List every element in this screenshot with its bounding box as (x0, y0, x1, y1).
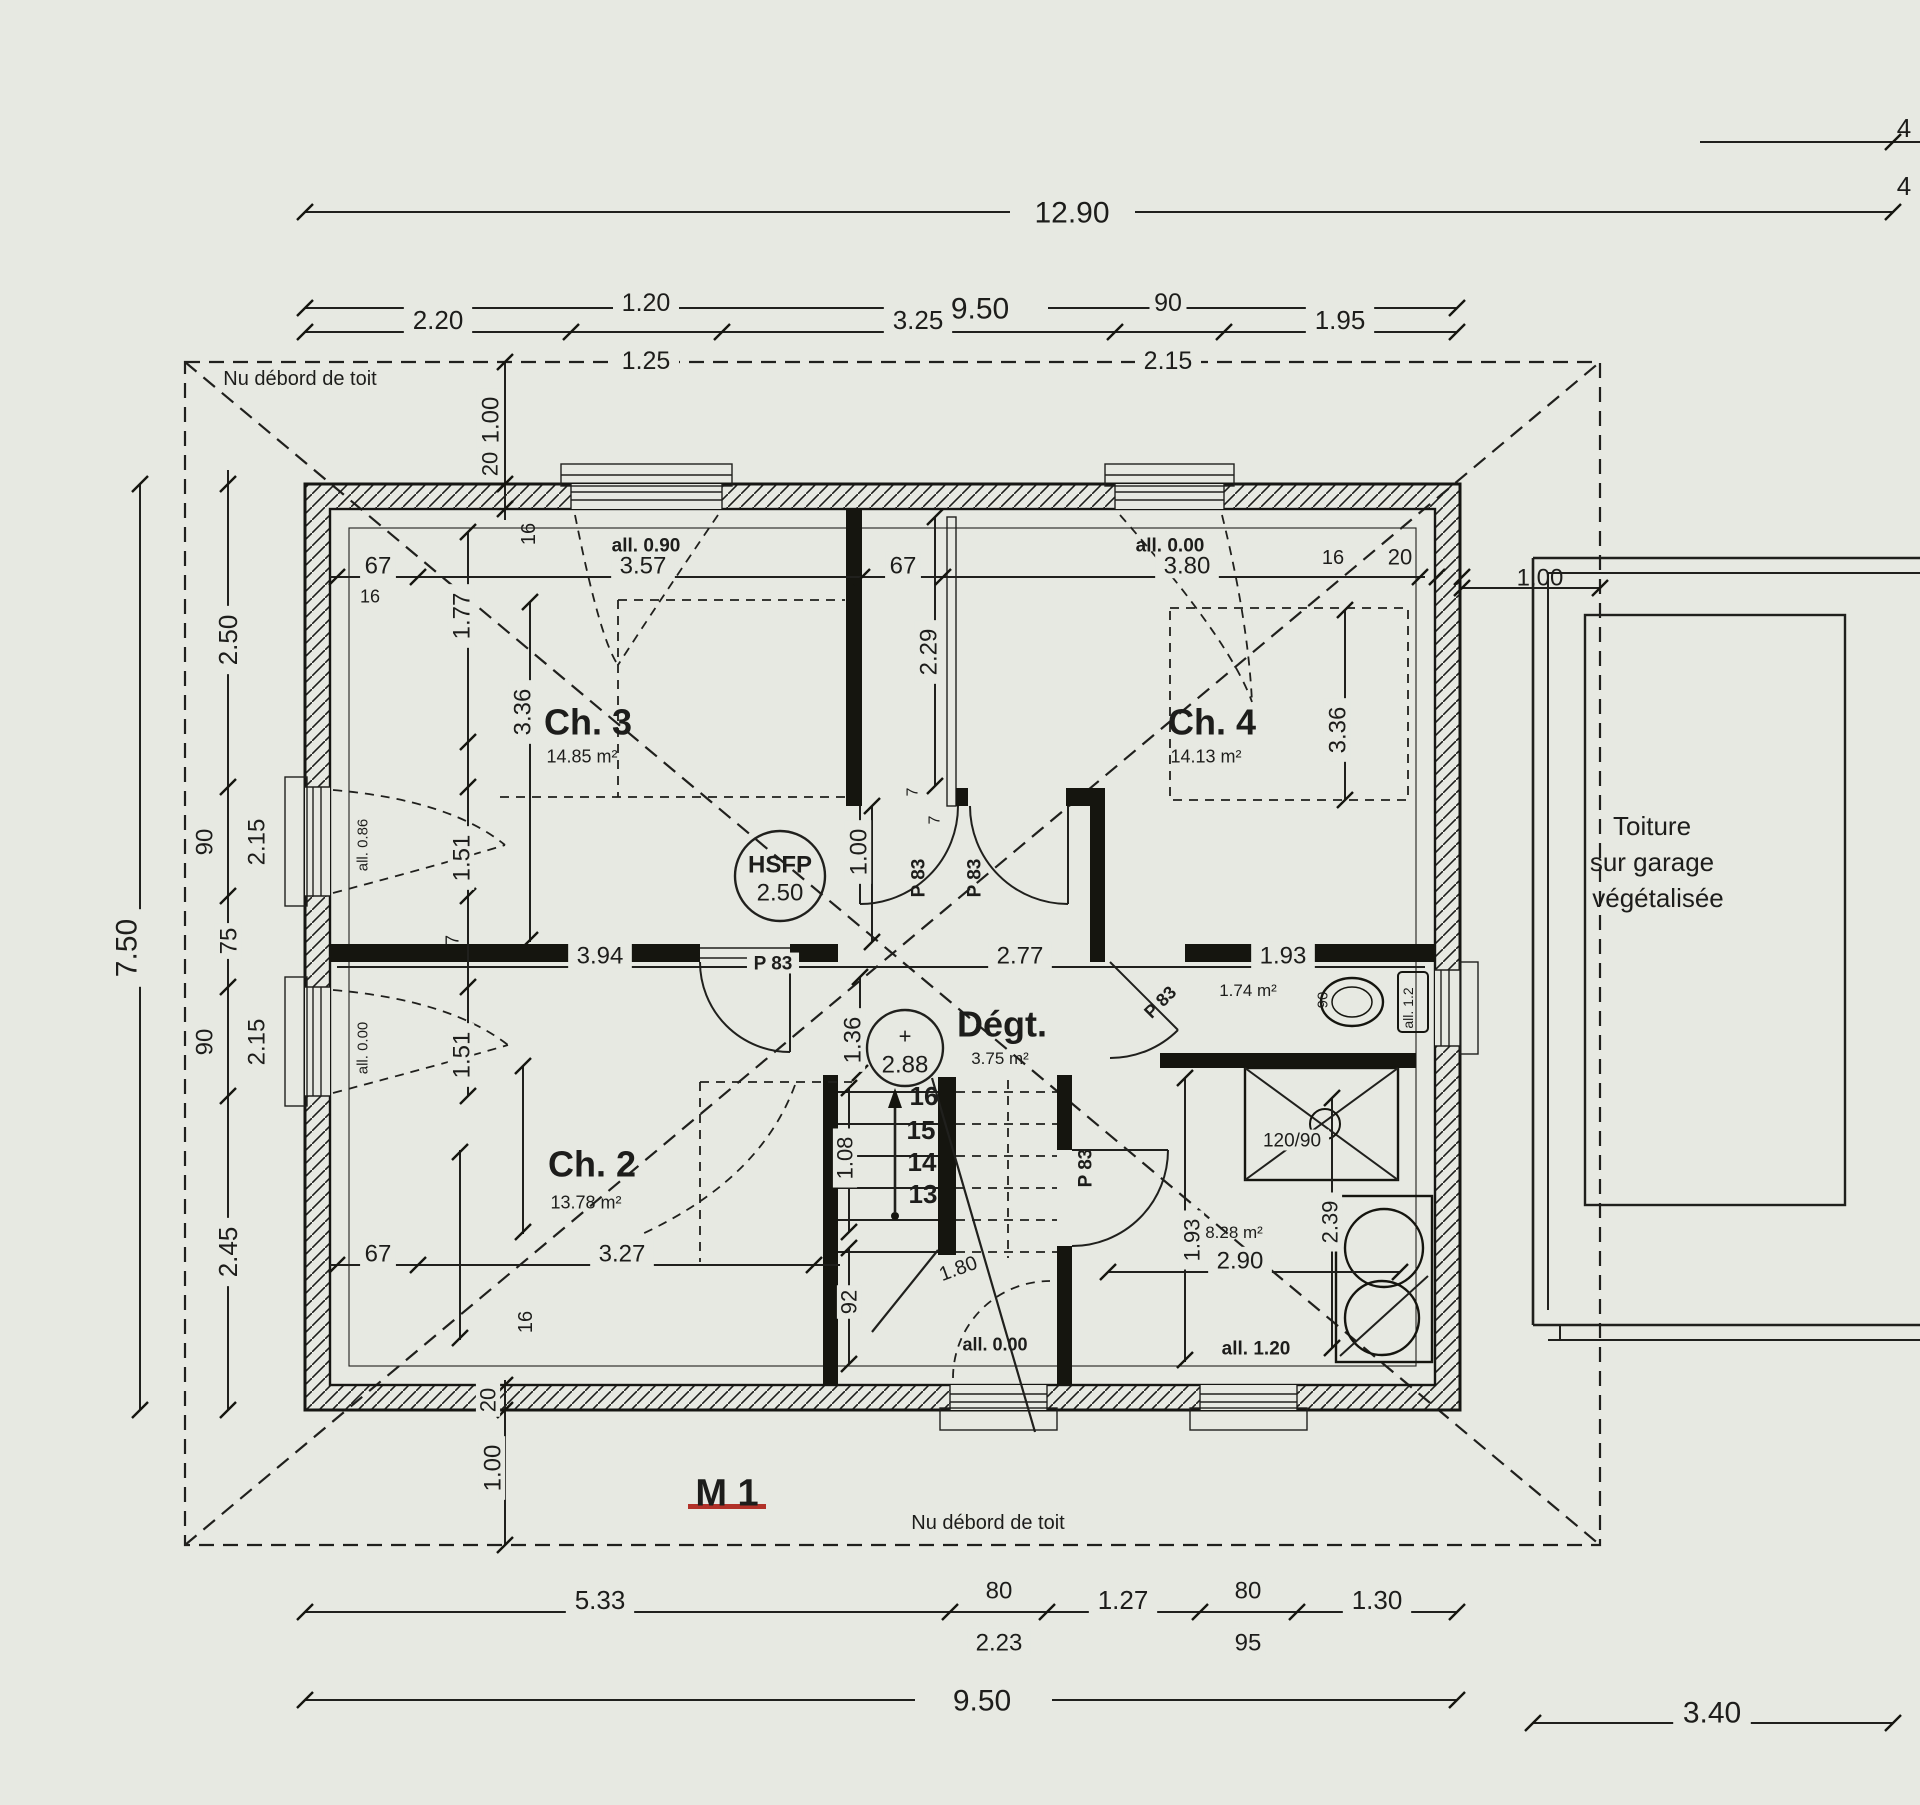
dim-interior: 3.94 (568, 942, 632, 970)
svg-text:all. 0.86: all. 0.86 (354, 819, 371, 872)
svg-text:80: 80 (1235, 1577, 1262, 1604)
svg-text:1.93: 1.93 (1180, 1219, 1205, 1262)
svg-text:80: 80 (986, 1577, 1013, 1604)
dim-interior: 1.93 (1180, 1210, 1205, 1269)
svg-text:4: 4 (1897, 171, 1911, 201)
svg-text:2.39: 2.39 (1318, 1201, 1343, 1244)
dim-top-house: 9.50 (941, 292, 1019, 326)
door-label: P 83 (1076, 1149, 1097, 1188)
level-hsfp-label: HSFP (748, 851, 812, 878)
svg-text:1.08: 1.08 (833, 1137, 858, 1180)
sill-label: all. 0.00 (962, 1334, 1027, 1354)
level-floor-value: 2.88 (882, 1051, 929, 1078)
dim-right-edge-fragment: 4 (1897, 113, 1911, 143)
dim-bottom-garage: 3.40 (1673, 1696, 1751, 1730)
svg-text:4: 4 (1897, 113, 1911, 143)
dim-wall: 16 (518, 523, 540, 545)
dim-interior: 2.77 (988, 942, 1052, 970)
fixture-shower-size: 120/90 (1255, 1130, 1329, 1152)
dim-right-edge-fragment: 4 (1897, 171, 1911, 201)
svg-text:67: 67 (365, 1240, 392, 1267)
dim-left: 2.45 (213, 1218, 243, 1286)
dim-top: 1.95 (1306, 305, 1374, 335)
svg-text:all. 0.00: all. 0.00 (962, 1334, 1027, 1354)
svg-text:12.90: 12.90 (1034, 197, 1109, 230)
room-ch3-label: Ch. 3 (544, 702, 632, 743)
stair-tread-16: 16 (910, 1081, 939, 1111)
svg-text:7: 7 (927, 815, 944, 824)
dim-interior: 67 (360, 1240, 396, 1268)
level-hsfp-value: 2.50 (757, 879, 804, 906)
svg-text:14: 14 (908, 1147, 937, 1177)
svg-text:8.28 m²: 8.28 m² (1205, 1223, 1263, 1242)
svg-text:2.50: 2.50 (757, 879, 804, 906)
svg-text:2.20: 2.20 (413, 305, 464, 335)
stair-tread-15: 15 (907, 1115, 936, 1145)
svg-text:2.15: 2.15 (1144, 347, 1193, 375)
dim-interior: 3.36 (1324, 698, 1352, 762)
svg-text:20: 20 (476, 1388, 501, 1412)
room-ch2-label: Ch. 2 (548, 1144, 636, 1185)
svg-text:1.30: 1.30 (1352, 1585, 1403, 1615)
svg-text:1.93: 1.93 (1260, 942, 1307, 969)
room-degt-area: 3.75 m² (971, 1049, 1029, 1068)
svg-text:3.40: 3.40 (1683, 1697, 1741, 1730)
dim-interior: 2.39 (1318, 1192, 1343, 1251)
svg-text:1.25: 1.25 (622, 347, 671, 375)
dim-interior: 3.80 (1155, 552, 1219, 580)
svg-text:1.00: 1.00 (479, 1445, 506, 1492)
svg-text:Nu débord de toit: Nu débord de toit (911, 1512, 1065, 1534)
svg-text:75: 75 (215, 928, 242, 955)
level-floor-plus: + (899, 1024, 912, 1049)
svg-text:3.80: 3.80 (1164, 552, 1211, 579)
dim-left: 2.50 (213, 606, 243, 674)
svg-text:Ch. 4: Ch. 4 (1168, 702, 1256, 743)
dim-bottom-house: 9.50 (943, 1684, 1021, 1718)
room-wc-area: 1.74 m² (1219, 981, 1277, 1000)
dim-wall: 16 (1322, 547, 1344, 569)
svg-text:2.88: 2.88 (882, 1051, 929, 1078)
dim-interior: 92 (837, 1285, 862, 1319)
dim-interior: 7 (927, 815, 944, 824)
dim-top: 90 (1150, 288, 1187, 317)
annotation-garage-line3: végétalisée (1592, 883, 1724, 913)
svg-text:all. 1.2: all. 1.2 (1400, 987, 1416, 1028)
svg-text:7: 7 (442, 935, 462, 945)
dim-interior: 3.27 (590, 1240, 654, 1268)
svg-text:Dégt.: Dégt. (957, 1004, 1047, 1045)
svg-text:16: 16 (515, 1311, 537, 1333)
svg-text:16: 16 (910, 1081, 939, 1111)
svg-text:1.51: 1.51 (448, 835, 475, 882)
dim-roof-overhang: 1.00 (1517, 564, 1564, 591)
svg-text:M 1: M 1 (695, 1472, 758, 1514)
dim-bottom: 80 (981, 1577, 1017, 1605)
dim-interior: 1.51 (448, 1023, 476, 1087)
svg-text:1.74 m²: 1.74 m² (1219, 981, 1277, 1000)
svg-text:13: 13 (909, 1179, 938, 1209)
svg-text:1.36: 1.36 (839, 1017, 866, 1064)
dim-interior: 3.36 (509, 680, 537, 744)
stair-tread-13: 13 (909, 1179, 938, 1209)
door-label: P 83 (965, 859, 986, 898)
dim-top: 2.20 (404, 305, 472, 335)
dim-interior: 1.08 (833, 1128, 858, 1187)
svg-text:2.50: 2.50 (213, 615, 243, 666)
svg-text:7: 7 (905, 787, 922, 796)
door-label: P 83 (747, 953, 799, 975)
dim-interior: 1.51 (448, 826, 476, 890)
svg-text:15: 15 (907, 1115, 936, 1145)
room-degt-label: Dégt. (957, 1004, 1047, 1045)
dim-roof-overhang: 1.00 (477, 388, 505, 452)
dim-interior: 67 (885, 552, 921, 580)
svg-text:90: 90 (191, 829, 218, 856)
svg-text:90: 90 (1154, 289, 1182, 317)
dim-interior: 1.00 (845, 820, 873, 884)
svg-text:16: 16 (1322, 547, 1344, 569)
svg-text:1.00: 1.00 (477, 397, 504, 444)
dim-left: 2.15 (243, 819, 270, 866)
svg-text:3.75 m²: 3.75 m² (971, 1049, 1029, 1068)
annotation-roof-top: Nu débord de toit (223, 368, 377, 390)
svg-text:2.23: 2.23 (976, 1629, 1023, 1656)
svg-text:14.85 m²: 14.85 m² (546, 746, 617, 766)
dim-left: 90 (191, 829, 218, 856)
floor-plan-page: 4412.909.502.201.201.253.25902.151.957.5… (0, 0, 1920, 1805)
svg-text:1.20: 1.20 (622, 289, 671, 317)
svg-text:2.29: 2.29 (915, 629, 942, 676)
dim-interior: 2.29 (915, 620, 943, 684)
dim-bottom: 80 (1230, 1577, 1266, 1605)
svg-text:7.50: 7.50 (111, 919, 144, 977)
room-ch2-area: 13.78 m² (550, 1192, 621, 1212)
svg-text:P 83: P 83 (1076, 1149, 1097, 1188)
svg-text:90: 90 (191, 1029, 218, 1056)
svg-text:20: 20 (1388, 545, 1412, 570)
sill-label: all. 0.86 (354, 819, 371, 872)
dim-bottom: 95 (1230, 1629, 1266, 1657)
svg-text:3.36: 3.36 (1324, 707, 1351, 754)
dim-wall: 20 (478, 447, 503, 481)
dim-interior: 1.77 (448, 584, 476, 648)
svg-text:all. 0.00: all. 0.00 (354, 1022, 371, 1075)
svg-text:3.25: 3.25 (893, 305, 944, 335)
svg-text:2.15: 2.15 (243, 819, 270, 866)
room-ch4-label: Ch. 4 (1168, 702, 1256, 743)
svg-text:Ch. 3: Ch. 3 (544, 702, 632, 743)
svg-text:Nu débord de toit: Nu débord de toit (223, 368, 377, 390)
svg-text:95: 95 (1235, 1629, 1262, 1656)
svg-text:1.51: 1.51 (448, 1032, 475, 1079)
svg-text:92: 92 (837, 1290, 862, 1314)
svg-text:67: 67 (890, 552, 917, 579)
svg-text:1.00: 1.00 (1517, 564, 1564, 591)
svg-text:5.33: 5.33 (575, 1585, 626, 1615)
dim-top: 2.15 (1135, 346, 1201, 375)
dim-roof-overhang: 1.00 (479, 1436, 507, 1500)
svg-text:P 83: P 83 (909, 859, 930, 898)
dim-wall: 20 (1388, 545, 1412, 570)
svg-text:1.27: 1.27 (1098, 1585, 1149, 1615)
room-bath-area: 8.28 m² (1205, 1223, 1263, 1242)
sill-label: all. 1.2 (1400, 987, 1416, 1028)
svg-text:1.00: 1.00 (845, 829, 872, 876)
svg-text:all. 1.20: all. 1.20 (1222, 1339, 1291, 1360)
dim-bottom: 1.30 (1343, 1585, 1411, 1615)
svg-text:2.45: 2.45 (213, 1227, 243, 1278)
room-ch3-area: 14.85 m² (546, 746, 617, 766)
svg-text:14.13 m²: 14.13 m² (1170, 746, 1241, 766)
svg-text:9.50: 9.50 (953, 1685, 1011, 1718)
annotation-garage-line1: Toiture (1613, 811, 1691, 841)
svg-text:1.77: 1.77 (448, 593, 475, 640)
svg-text:P 83: P 83 (965, 859, 986, 898)
svg-text:13.78 m²: 13.78 m² (550, 1192, 621, 1212)
stair-tread-14: 14 (908, 1147, 937, 1177)
dim-bottom: 1.27 (1089, 1585, 1157, 1615)
door-label: P 83 (909, 859, 930, 898)
annotation-roof-bottom: Nu débord de toit (911, 1512, 1065, 1534)
svg-text:+: + (899, 1024, 912, 1049)
dim-interior: 67 (360, 552, 396, 580)
svg-text:P 83: P 83 (754, 954, 793, 975)
dim-interior: 3.57 (611, 552, 675, 580)
dim-interior: 1.36 (839, 1008, 867, 1072)
annotation-garage-line2: sur garage (1590, 847, 1714, 877)
svg-text:3.36: 3.36 (509, 689, 536, 736)
svg-text:Toiture: Toiture (1613, 811, 1691, 841)
dim-top: 1.20 (613, 288, 679, 317)
svg-text:végétalisée: végétalisée (1592, 883, 1724, 913)
svg-text:20: 20 (478, 452, 503, 476)
dim-wall: 20 (476, 1383, 501, 1417)
svg-text:90: 90 (1314, 992, 1331, 1009)
svg-text:2.90: 2.90 (1217, 1247, 1264, 1274)
dim-left: 2.15 (243, 1019, 270, 1066)
dim-interior: 2.90 (1208, 1247, 1272, 1275)
plan-mark-m1: M 1 (695, 1472, 758, 1514)
svg-text:120/90: 120/90 (1263, 1131, 1321, 1152)
dim-interior: 7 (905, 787, 922, 796)
dim-interior: 16 (360, 586, 380, 606)
svg-text:sur garage: sur garage (1590, 847, 1714, 877)
dim-top-overall: 12.90 (1025, 196, 1120, 230)
svg-text:2.15: 2.15 (243, 1019, 270, 1066)
dim-top: 3.25 (884, 305, 952, 335)
dim-bottom: 5.33 (566, 1585, 634, 1615)
svg-text:1.95: 1.95 (1315, 305, 1366, 335)
sill-label: all. 0.00 (354, 1022, 371, 1075)
dim-left-overall: 7.50 (110, 909, 144, 987)
svg-text:3.94: 3.94 (577, 942, 624, 969)
svg-text:3.27: 3.27 (599, 1240, 646, 1267)
svg-text:3.57: 3.57 (620, 552, 667, 579)
dim-top: 1.25 (613, 346, 679, 375)
room-ch4-area: 14.13 m² (1170, 746, 1241, 766)
sill-label: all. 1.20 (1222, 1339, 1291, 1360)
dim-interior: 7 (442, 935, 462, 945)
svg-text:16: 16 (518, 523, 540, 545)
svg-text:HSFP: HSFP (748, 851, 812, 878)
dim-interior: 90 (1314, 992, 1331, 1009)
dim-bottom: 2.23 (967, 1629, 1031, 1657)
svg-text:9.50: 9.50 (951, 293, 1009, 326)
dim-wall: 16 (515, 1311, 537, 1333)
floor-plan-drawing: 4412.909.502.201.201.253.25902.151.957.5… (0, 0, 1920, 1805)
svg-text:67: 67 (365, 552, 392, 579)
svg-text:16: 16 (360, 586, 380, 606)
dim-left: 75 (215, 923, 243, 959)
svg-text:Ch. 2: Ch. 2 (548, 1144, 636, 1185)
dim-interior: 1.93 (1251, 942, 1315, 970)
svg-text:2.77: 2.77 (997, 942, 1044, 969)
dim-left: 90 (191, 1029, 218, 1056)
